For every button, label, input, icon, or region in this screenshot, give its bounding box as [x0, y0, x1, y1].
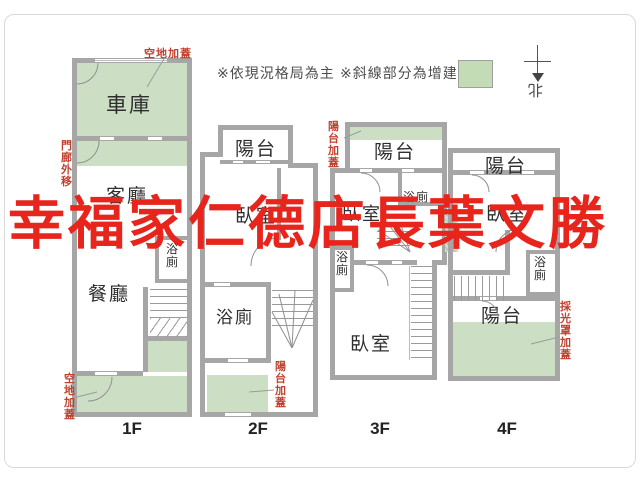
agent-watermark-text: 幸福家仁德店長葉文勝 — [8, 193, 638, 256]
floorplan-canvas: ※依現況格局為主 ※斜線部分為增建 北 車庫 客廳 餐廳 浴廁 1F 空地加蓋 … — [0, 0, 640, 480]
